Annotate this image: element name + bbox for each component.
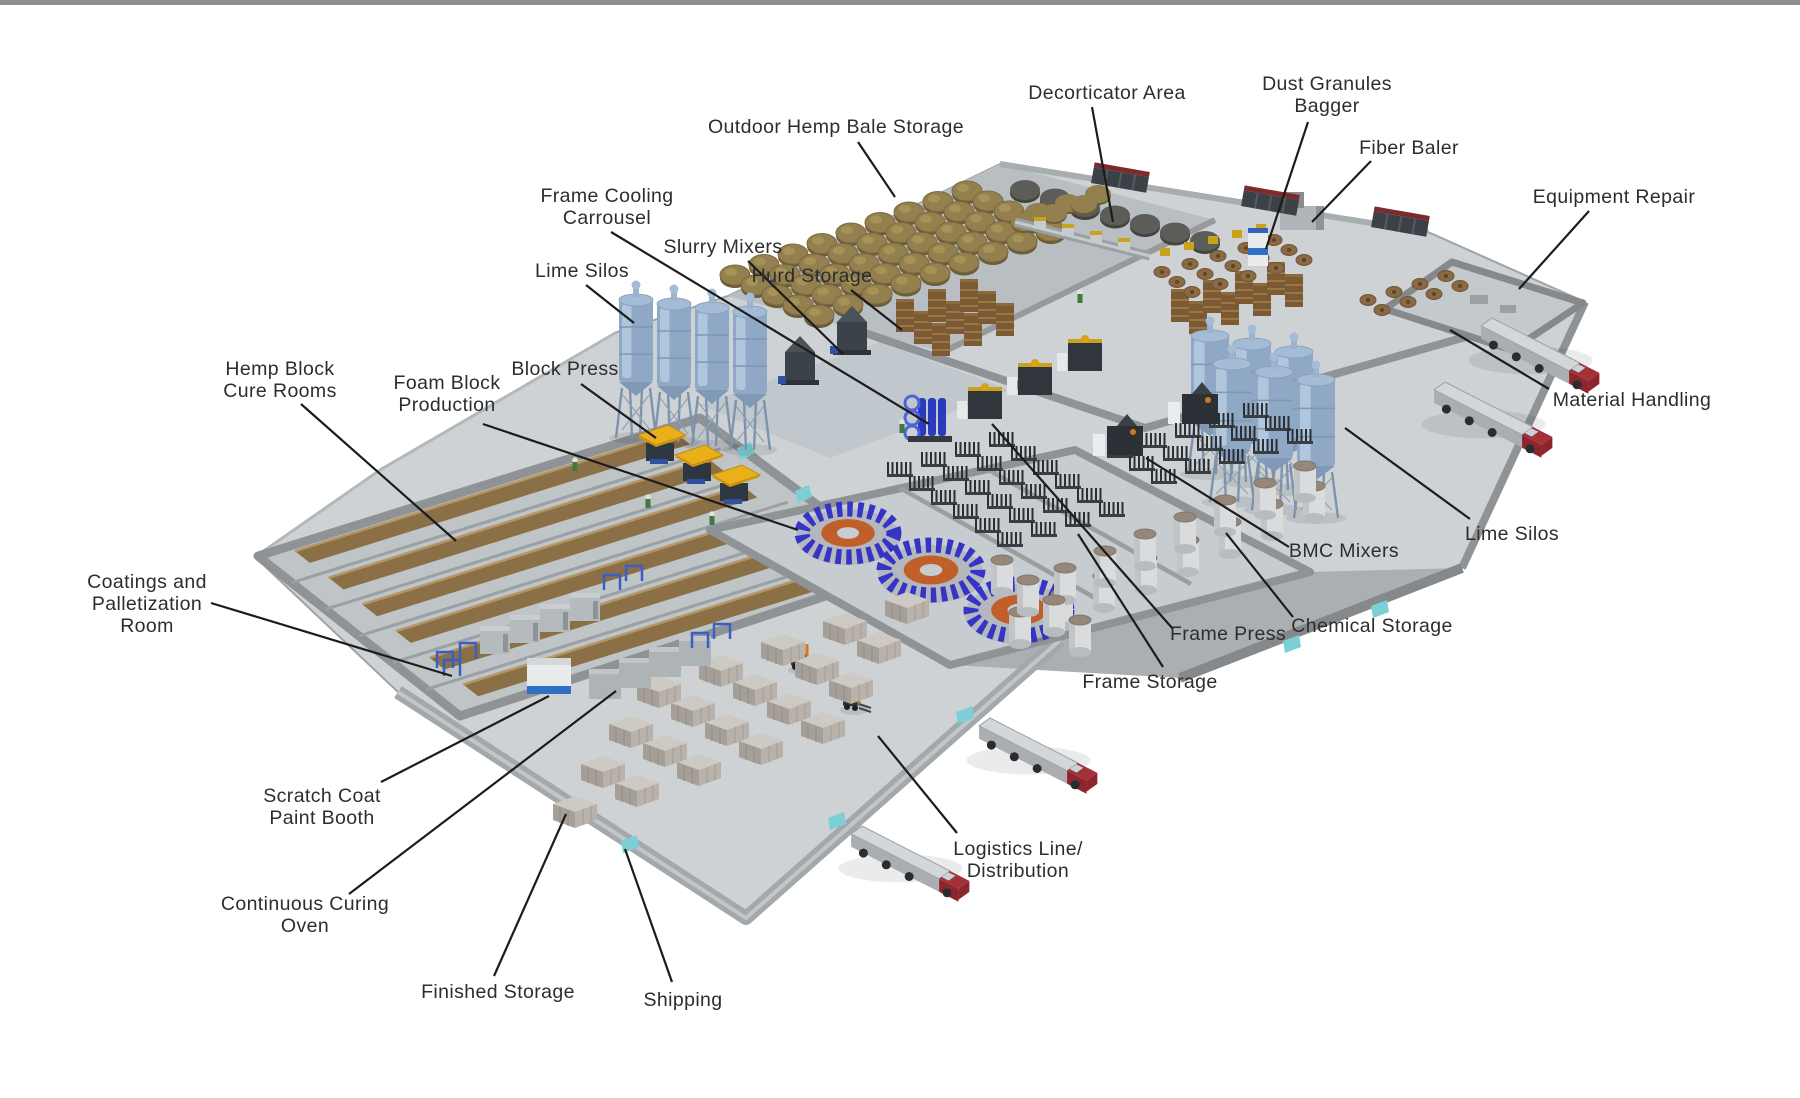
leader-line-slurry-mixers (748, 261, 843, 354)
leader-line-lime-silos-left (586, 285, 634, 323)
leader-line-outdoor-hemp-bale-storage (858, 142, 895, 197)
leader-line-hurd-storage (851, 290, 902, 330)
leader-line-lime-silos-right (1345, 428, 1470, 519)
leader-line-bmc-mixers (1146, 458, 1289, 547)
leader-line-fiber-baler (1312, 161, 1371, 222)
leader-line-continuous-curing-oven (349, 691, 616, 894)
leader-line-finished-storage (494, 814, 566, 976)
leader-line-logistics-line-distribution (878, 736, 957, 833)
leader-line-shipping (625, 849, 672, 982)
leader-lines-layer (0, 0, 1800, 1098)
leader-line-decorticator-area (1092, 107, 1113, 222)
leader-line-hemp-block-cure-rooms (301, 404, 456, 541)
leader-line-material-handling (1450, 330, 1549, 389)
leader-line-chemical-storage (1226, 533, 1293, 617)
leader-line-scratch-coat-paint-booth (381, 696, 549, 782)
leader-line-coatings-and-palletization-room (211, 603, 452, 676)
leader-line-block-press (581, 384, 656, 438)
leader-line-foam-block-production (483, 424, 798, 530)
leader-line-frame-storage (1078, 534, 1163, 667)
leader-line-equipment-repair (1519, 211, 1589, 289)
leader-line-frame-press (992, 424, 1173, 629)
leader-line-dust-granules-bagger (1266, 122, 1308, 249)
factory-diagram: Outdoor Hemp Bale StorageDecorticator Ar… (0, 0, 1800, 1098)
leader-line-frame-cooling-carrousel (611, 232, 929, 424)
